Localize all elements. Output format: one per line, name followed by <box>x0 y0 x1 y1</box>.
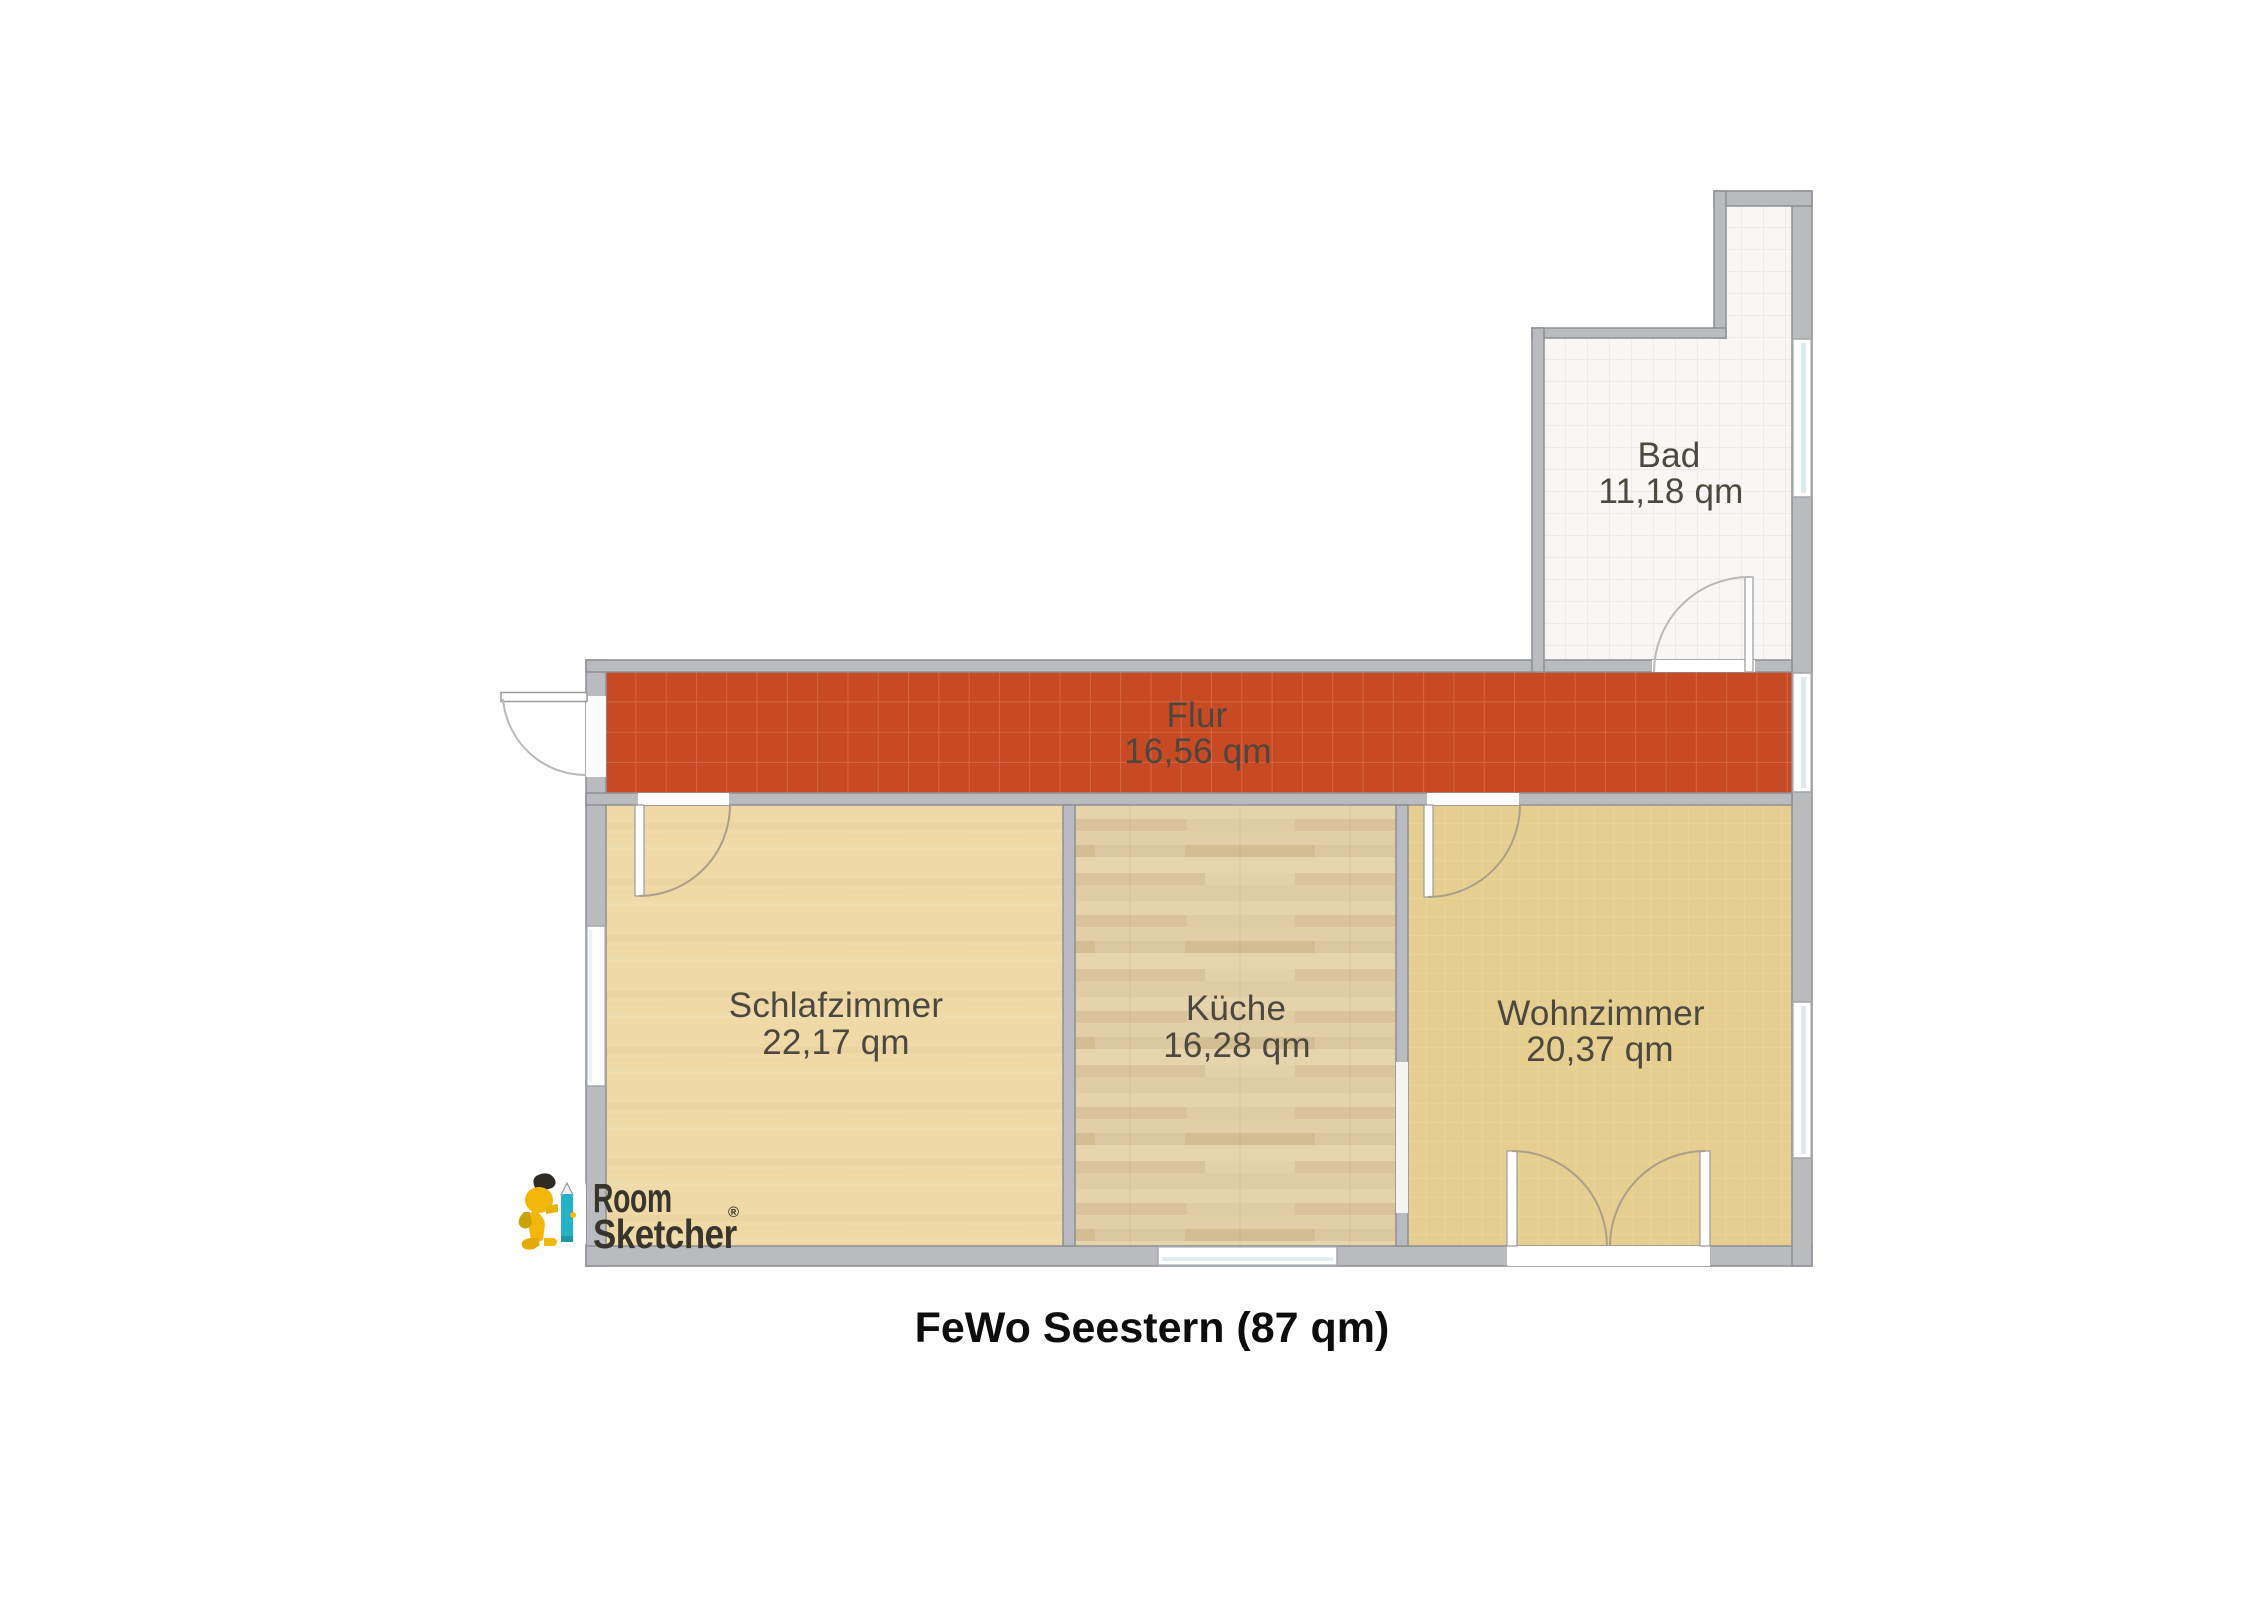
svg-text:FeWo Seestern (87 qm): FeWo Seestern (87 qm) <box>915 1304 1390 1352</box>
svg-text:16,56 qm: 16,56 qm <box>1124 732 1272 771</box>
svg-text:®: ® <box>728 1204 739 1221</box>
svg-text:Küche: Küche <box>1186 989 1286 1028</box>
svg-text:20,37 qm: 20,37 qm <box>1526 1030 1674 1069</box>
svg-text:Wohnzimmer: Wohnzimmer <box>1497 994 1705 1033</box>
svg-text:Flur: Flur <box>1166 696 1227 735</box>
svg-text:16,28 qm: 16,28 qm <box>1163 1026 1311 1065</box>
svg-text:22,17 qm: 22,17 qm <box>762 1023 910 1062</box>
svg-text:Bad: Bad <box>1638 436 1701 475</box>
svg-text:11,18 qm: 11,18 qm <box>1599 472 1744 511</box>
svg-text:Sketcher: Sketcher <box>593 1212 737 1257</box>
svg-text:Schlafzimmer: Schlafzimmer <box>729 986 944 1025</box>
